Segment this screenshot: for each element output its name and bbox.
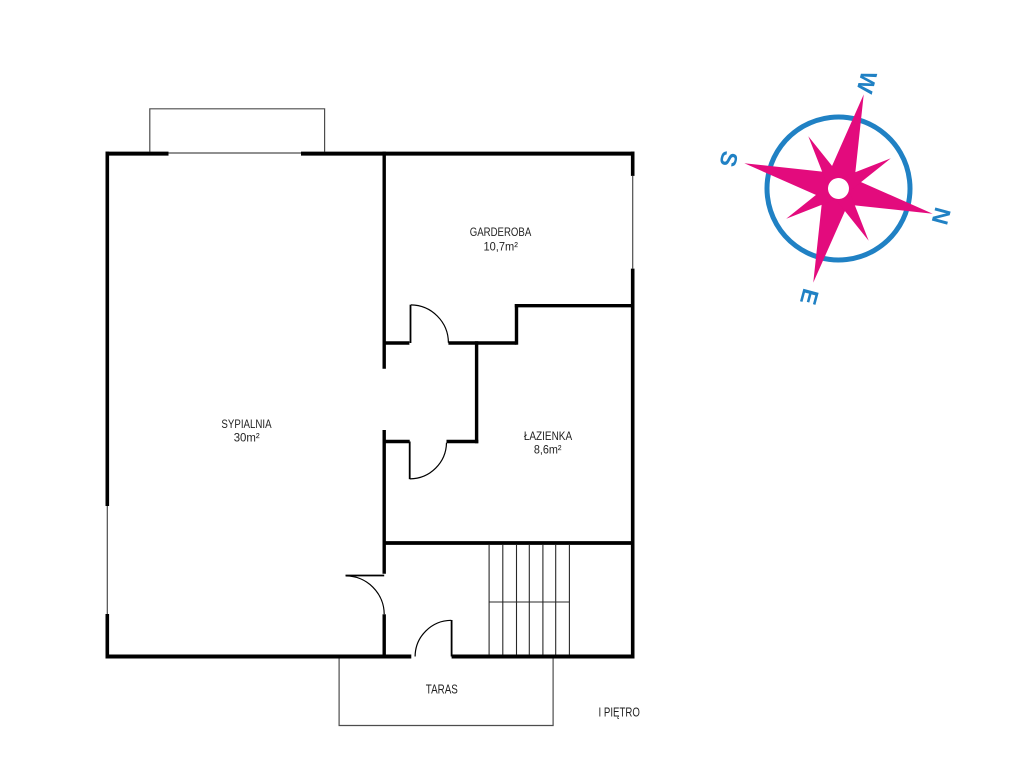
svg-text:ŁAZIENKA: ŁAZIENKA	[524, 429, 573, 443]
svg-text:GARDEROBA: GARDEROBA	[470, 225, 532, 239]
svg-text:30m²: 30m²	[234, 431, 260, 445]
svg-text:SYPIALNIA: SYPIALNIA	[221, 417, 272, 431]
svg-text:10,7m²: 10,7m²	[484, 240, 518, 254]
svg-text:TARAS: TARAS	[426, 683, 458, 697]
svg-text:8,6m²: 8,6m²	[534, 443, 562, 457]
svg-text:I PIĘTRO: I PIĘTRO	[599, 706, 641, 720]
